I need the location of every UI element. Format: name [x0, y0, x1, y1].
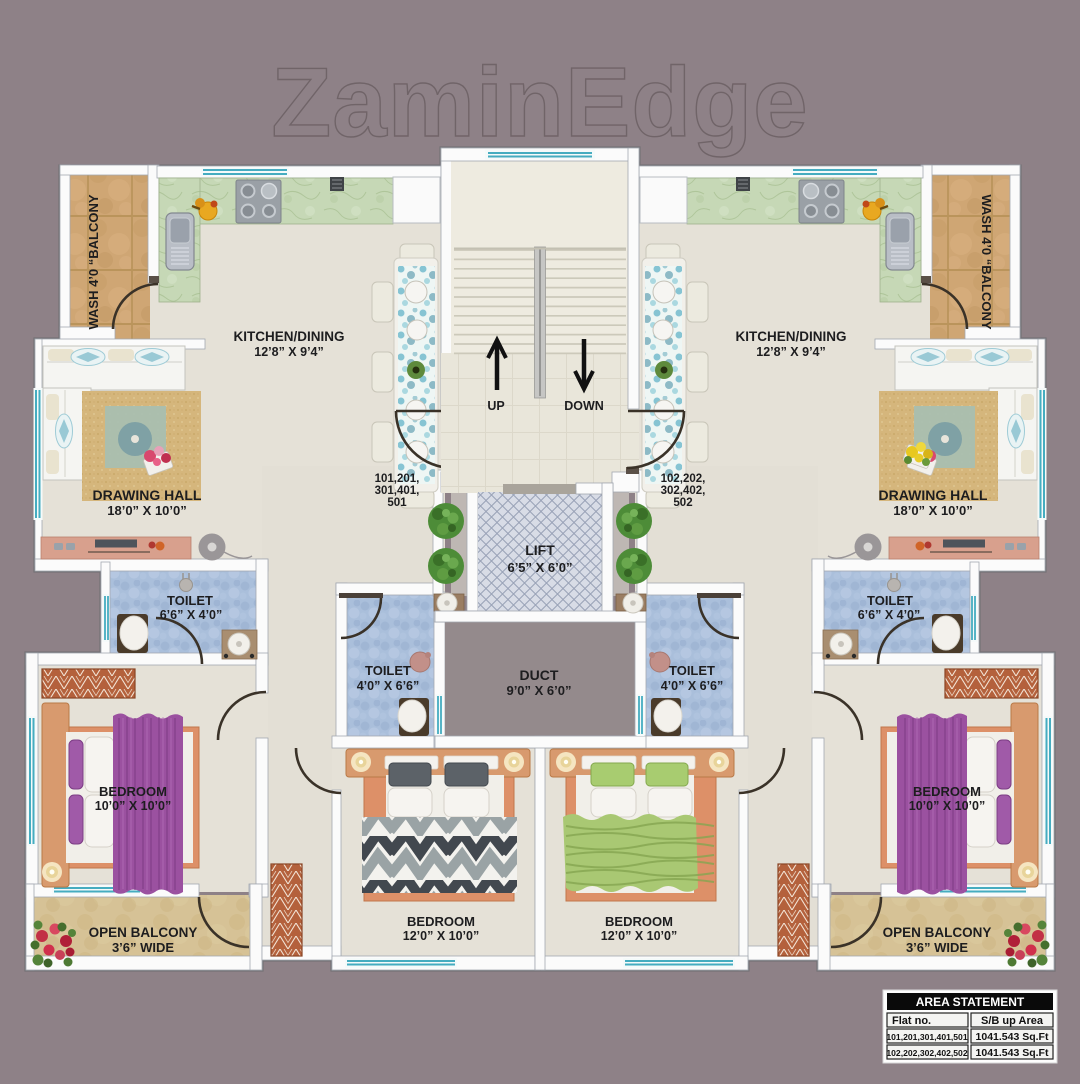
svg-text:10’0” X 10’0”: 10’0” X 10’0” [95, 799, 171, 813]
svg-text:101,201,: 101,201, [375, 473, 420, 485]
svg-text:DUCT: DUCT [520, 667, 559, 683]
svg-text:BEDROOM: BEDROOM [407, 914, 475, 929]
svg-text:UP: UP [487, 399, 504, 413]
svg-text:501: 501 [387, 497, 407, 509]
svg-text:OPEN BALCONY: OPEN BALCONY [89, 925, 198, 940]
svg-text:102,202,: 102,202, [661, 473, 706, 485]
svg-text:10’0” X 10’0”: 10’0” X 10’0” [909, 799, 985, 813]
svg-text:12’0” X 10’0”: 12’0” X 10’0” [601, 929, 677, 943]
svg-text:WASH 4’0 “BALCONY: WASH 4’0 “BALCONY [979, 194, 994, 329]
svg-text:12’0” X 10’0”: 12’0” X 10’0” [403, 929, 479, 943]
svg-text:ZaminEdge: ZaminEdge [271, 47, 808, 157]
svg-text:DOWN: DOWN [564, 399, 604, 413]
svg-text:DRAWING HALL: DRAWING HALL [93, 487, 202, 503]
svg-text:4’0” X 6’6”: 4’0” X 6’6” [661, 679, 724, 693]
svg-text:101,201,301,401,501: 101,201,301,401,501 [886, 1032, 967, 1042]
svg-text:AREA STATEMENT: AREA STATEMENT [916, 995, 1025, 1009]
svg-text:KITCHEN/DINING: KITCHEN/DINING [736, 329, 847, 344]
svg-text:3’6” WIDE: 3’6” WIDE [906, 940, 968, 955]
svg-text:4’0” X 6’6”: 4’0” X 6’6” [357, 679, 420, 693]
svg-text:LIFT: LIFT [525, 542, 555, 558]
svg-text:102,202,302,402,502: 102,202,302,402,502 [886, 1048, 967, 1058]
svg-text:18’0” X 10’0”: 18’0” X 10’0” [893, 503, 973, 518]
svg-text:1041.543 Sq.Ft: 1041.543 Sq.Ft [976, 1031, 1049, 1043]
svg-text:6’6” X 4’0”: 6’6” X 4’0” [858, 608, 921, 622]
svg-text:302,402,: 302,402, [661, 485, 706, 497]
svg-text:WASH 4’0 “BALCONY: WASH 4’0 “BALCONY [86, 194, 101, 329]
svg-text:Flat no.: Flat no. [892, 1015, 931, 1027]
svg-text:12’8” X 9’4”: 12’8” X 9’4” [254, 345, 324, 359]
svg-text:TOILET: TOILET [867, 593, 913, 608]
svg-text:BEDROOM: BEDROOM [605, 914, 673, 929]
svg-text:502: 502 [673, 497, 692, 509]
svg-text:TOILET: TOILET [365, 663, 411, 678]
svg-text:OPEN BALCONY: OPEN BALCONY [883, 925, 992, 940]
svg-text:BEDROOM: BEDROOM [99, 784, 167, 799]
svg-text:18’0” X 10’0”: 18’0” X 10’0” [107, 503, 187, 518]
svg-text:301,401,: 301,401, [375, 485, 420, 497]
svg-text:6’6” X 4’0”: 6’6” X 4’0” [160, 608, 223, 622]
svg-text:DRAWING HALL: DRAWING HALL [879, 487, 988, 503]
svg-text:KITCHEN/DINING: KITCHEN/DINING [234, 329, 345, 344]
svg-text:12’8” X 9’4”: 12’8” X 9’4” [756, 345, 826, 359]
svg-text:TOILET: TOILET [167, 593, 213, 608]
svg-text:TOILET: TOILET [669, 663, 715, 678]
svg-text:3’6” WIDE: 3’6” WIDE [112, 940, 174, 955]
svg-text:1041.543 Sq.Ft: 1041.543 Sq.Ft [976, 1047, 1049, 1059]
svg-text:9’0” X 6’0”: 9’0” X 6’0” [506, 683, 571, 698]
svg-text:BEDROOM: BEDROOM [913, 784, 981, 799]
svg-text:S/B up Area: S/B up Area [981, 1015, 1044, 1027]
svg-text:6’5” X 6’0”: 6’5” X 6’0” [507, 560, 572, 575]
